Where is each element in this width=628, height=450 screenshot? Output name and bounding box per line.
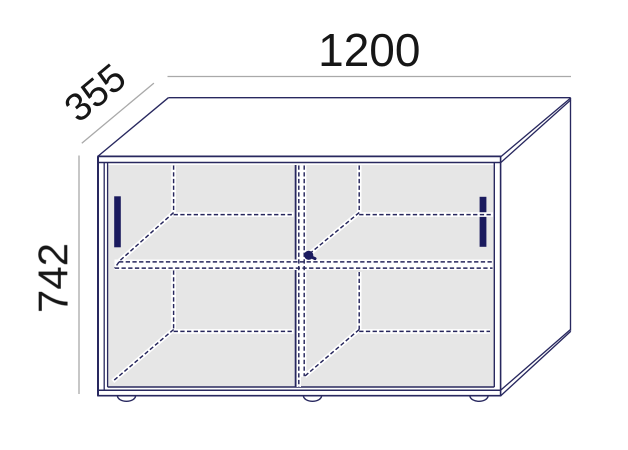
svg-text:742: 742 xyxy=(29,243,76,313)
svg-text:1200: 1200 xyxy=(318,24,420,76)
